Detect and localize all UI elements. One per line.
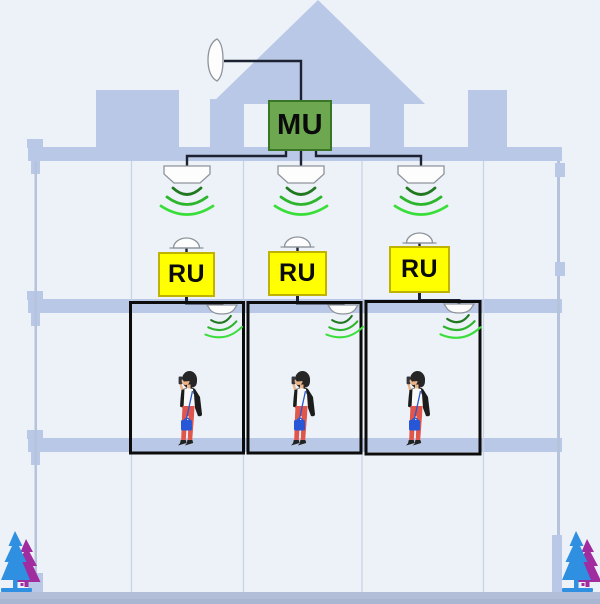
wifi-waves-icon bbox=[438, 313, 482, 340]
remote-unit-box: RU bbox=[389, 246, 450, 293]
wifi-waves-icon bbox=[275, 188, 327, 215]
person-with-phone-icon bbox=[406, 371, 430, 446]
wifi-waves-icon bbox=[395, 188, 447, 215]
remote-unit-box: RU bbox=[268, 251, 327, 296]
building-illustration bbox=[0, 0, 600, 604]
wifi-waves-icon bbox=[324, 314, 365, 340]
ground bbox=[0, 592, 600, 604]
ceiling-antenna-icon bbox=[398, 166, 444, 183]
person-with-phone-icon bbox=[291, 371, 315, 446]
das-building-diagram: MU RU RU RU bbox=[0, 0, 600, 604]
ceiling-antenna-icon bbox=[278, 166, 324, 183]
rooftop-dish-antenna-icon bbox=[208, 39, 223, 81]
chimney-left bbox=[96, 90, 179, 148]
wifi-waves-icon bbox=[161, 188, 213, 215]
dome-antenna-icon bbox=[281, 237, 315, 247]
chimney-right bbox=[468, 90, 507, 148]
ceiling-antenna-icon bbox=[164, 166, 210, 183]
dome-antenna-icon bbox=[170, 238, 204, 248]
dome-antenna-icon bbox=[403, 233, 437, 243]
remote-unit-box: RU bbox=[158, 252, 215, 297]
wifi-waves-icon bbox=[203, 314, 244, 340]
person-with-phone-icon bbox=[178, 371, 202, 446]
pine-trees-icon bbox=[562, 531, 600, 592]
master-unit-box: MU bbox=[268, 100, 332, 151]
